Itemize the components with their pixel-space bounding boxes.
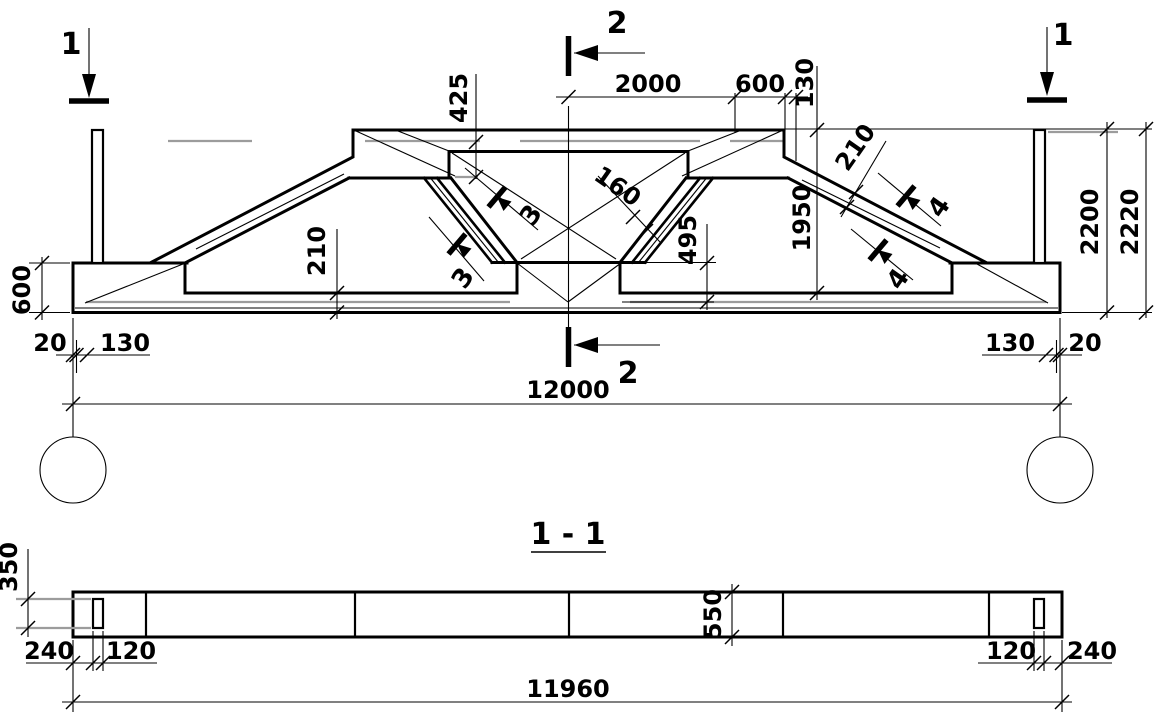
cut-label-3-lower: 3 (446, 262, 481, 294)
dim-12000: 12000 (526, 376, 610, 404)
section-hole-left (93, 599, 103, 628)
axis-circle-right (1027, 437, 1093, 503)
dim-130-left: 130 (100, 329, 150, 357)
section-cut-3-lower: 3 (429, 217, 484, 294)
post-left (92, 130, 103, 263)
dim-2200: 2200 (1076, 189, 1104, 256)
cut-label-2-top: 2 (607, 6, 628, 41)
dim-600-top: 600 (735, 70, 785, 98)
dim-20-left: 20 (33, 329, 66, 357)
cut-label-1-right: 1 (1053, 18, 1074, 53)
dim-2000: 2000 (615, 70, 682, 98)
cut-label-1-left: 1 (61, 27, 82, 62)
cut-label-2-bottom: 2 (618, 356, 639, 391)
section-dim-11960: 11960 (62, 640, 1072, 712)
drawing-page: 1 1 2 2 3 3 4 4 (0, 0, 1161, 718)
dim-1950: 1950 (788, 185, 816, 252)
section-hole-right (1034, 599, 1044, 628)
dim-425: 425 (445, 73, 473, 123)
dim-240-right: 240 (1067, 637, 1117, 665)
dim-130-right: 130 (985, 329, 1035, 357)
dim-210-chord: 210 (830, 119, 882, 176)
section-cut-4-upper: 4 (878, 173, 957, 226)
section-beam (73, 592, 1062, 637)
dim-11960: 11960 (526, 675, 610, 703)
cut-label-4-upper: 4 (922, 191, 957, 223)
truss-drawing-canvas: 1 1 2 2 3 3 4 4 (0, 0, 1161, 718)
section-1-1: 1 - 1 350 240 120 (0, 517, 1117, 712)
elevation-dimensions: 2000 600 130 425 1950 210 160 495 210 (8, 58, 1153, 411)
dim-550: 550 (699, 589, 727, 639)
dim-350: 350 (0, 542, 23, 592)
dim-240-left: 240 (24, 637, 74, 665)
dim-120-right: 120 (986, 637, 1036, 665)
dim-495: 495 (674, 215, 702, 265)
dim-210-bottom: 210 (303, 226, 331, 276)
dim-120-left: 120 (106, 637, 156, 665)
section-cut-1-left: 1 (61, 27, 109, 101)
section-cut-2-top: 2 (569, 6, 646, 76)
section-cut-1-right: 1 (1027, 18, 1073, 100)
axis-circle-left (40, 437, 106, 503)
dim-600-left: 600 (8, 265, 36, 315)
dim-2220: 2220 (1116, 189, 1144, 256)
dim-160: 160 (589, 161, 646, 213)
dim-20-right: 20 (1068, 329, 1101, 357)
dim-130-top: 130 (791, 58, 819, 108)
post-right (1034, 130, 1045, 263)
section-title: 1 - 1 (530, 517, 605, 552)
